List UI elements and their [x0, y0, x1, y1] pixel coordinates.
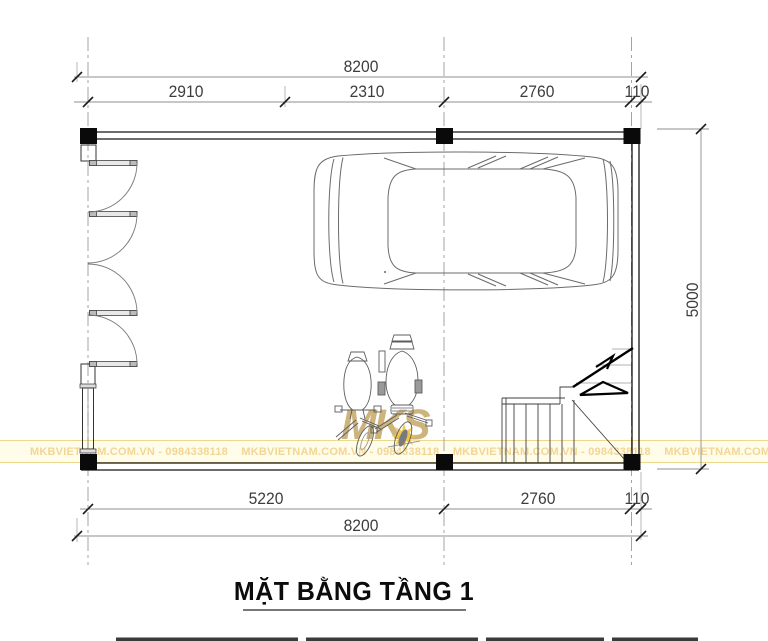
dim-top-segment-1: 2910	[169, 82, 204, 102]
dim-bottom-total: 8200	[344, 516, 379, 536]
stair-direction-arrow	[573, 348, 633, 395]
staircase	[502, 349, 632, 468]
perimeter-walls	[81, 132, 640, 470]
dim-bottom-segment-2: 2760	[521, 489, 556, 509]
dim-right-total: 5000	[683, 283, 703, 318]
title-underline	[243, 609, 466, 611]
motorbike-symbol-right	[371, 335, 432, 456]
dim-bottom-segment-3: 110	[625, 489, 650, 509]
page-title: MẶT BẰNG TẦNG 1	[234, 576, 474, 607]
dim-top-total: 8200	[344, 57, 379, 77]
dim-top-segment-3: 2760	[520, 82, 555, 102]
dim-bottom-segment-1: 5220	[249, 489, 284, 509]
folding-doors	[88, 161, 137, 367]
columns	[80, 128, 641, 470]
motorbike-symbol-left	[335, 352, 381, 458]
floor-plan-page: MKBVIETNAM.COM.VN - 0984338118 MKBVIETNA…	[0, 0, 768, 641]
left-window	[80, 384, 96, 453]
left-wall-posts	[81, 145, 96, 386]
door-swing-arcs	[88, 163, 137, 364]
dim-top-segment-4: 110	[625, 82, 650, 102]
grid-lines	[88, 37, 632, 565]
car-symbol	[314, 152, 618, 290]
cropped-text-band	[116, 638, 698, 641]
dim-top-segment-2: 2310	[350, 82, 385, 102]
